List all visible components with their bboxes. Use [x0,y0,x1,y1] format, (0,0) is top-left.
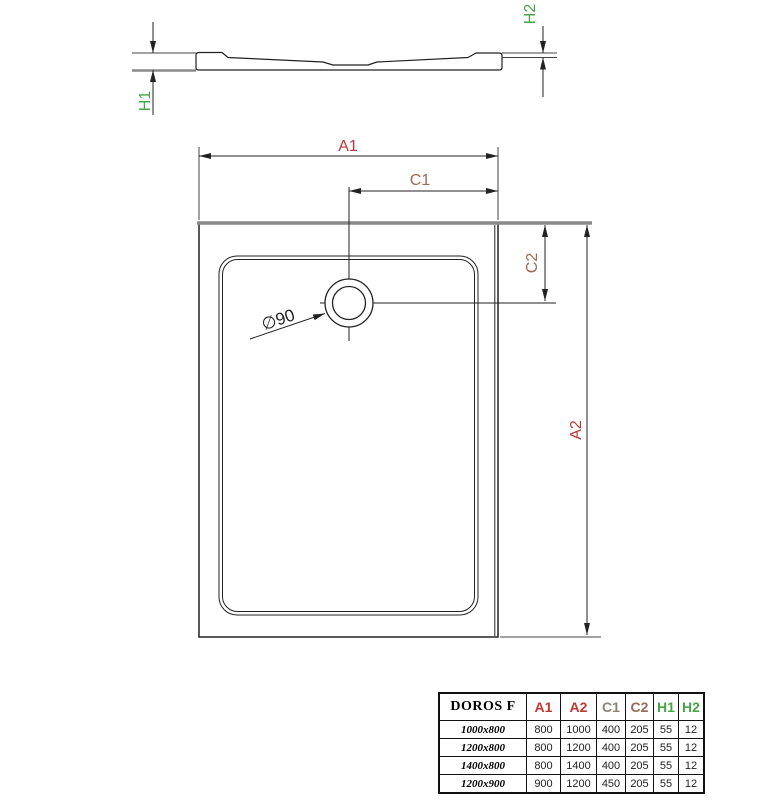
a1-dimension-label: A1 [338,138,358,155]
h2-dimension-label: H2 [522,4,539,25]
table-row: 1400x800 800 1400 400 205 55 12 [439,757,704,775]
value-c2: 205 [626,721,654,739]
value-a2: 1200 [561,775,597,794]
c1-dimension-label: C1 [410,172,431,189]
tray-profile-outline [196,53,502,71]
value-c1: 400 [597,757,626,775]
dimensions-table: DOROS F A1 A2 C1 C2 H1 H2 1000x800 800 1… [438,692,705,794]
size-label: 1400x800 [439,757,527,775]
value-c2: 205 [626,757,654,775]
value-a1: 800 [527,757,561,775]
drawing-canvas: H1 H2 [0,0,775,690]
value-a1: 800 [527,739,561,757]
value-c1: 400 [597,721,626,739]
h1-dimension-label: H1 [137,91,154,112]
value-h1: 55 [654,775,679,794]
value-c2: 205 [626,739,654,757]
value-h2: 12 [679,721,705,739]
col-header-h1: H1 [654,693,679,721]
value-a2: 1000 [561,721,597,739]
col-header-a1: A1 [527,693,561,721]
value-c1: 400 [597,739,626,757]
shower-tray-technical-drawing: H1 H2 [0,0,775,800]
c2-dimension-label: C2 [524,253,541,274]
value-c2: 205 [626,775,654,794]
value-a2: 1200 [561,739,597,757]
size-label: 1200x800 [439,739,527,757]
col-header-a2: A2 [561,693,597,721]
value-a1: 800 [527,721,561,739]
product-name: DOROS F [439,693,527,721]
table-row: 1200x900 900 1200 450 205 55 12 [439,775,704,794]
value-h2: 12 [679,757,705,775]
table-header-row: DOROS F A1 A2 C1 C2 H1 H2 [439,693,704,721]
col-header-c2: C2 [626,693,654,721]
col-header-h2: H2 [679,693,705,721]
col-header-c1: C1 [597,693,626,721]
value-a1: 900 [527,775,561,794]
table-row: 1200x800 800 1200 400 205 55 12 [439,739,704,757]
value-h1: 55 [654,739,679,757]
value-a2: 1400 [561,757,597,775]
value-h1: 55 [654,757,679,775]
table-row: 1000x800 800 1000 400 205 55 12 [439,721,704,739]
value-h2: 12 [679,775,705,794]
value-c1: 450 [597,775,626,794]
value-h1: 55 [654,721,679,739]
side-profile-view: H1 H2 [132,4,557,115]
size-label: 1200x900 [439,775,527,794]
a2-dimension-label: A2 [568,420,585,440]
size-label: 1000x800 [439,721,527,739]
top-plan-view: ∅90 A1 C1 C2 A2 [197,138,601,637]
value-h2: 12 [679,739,705,757]
